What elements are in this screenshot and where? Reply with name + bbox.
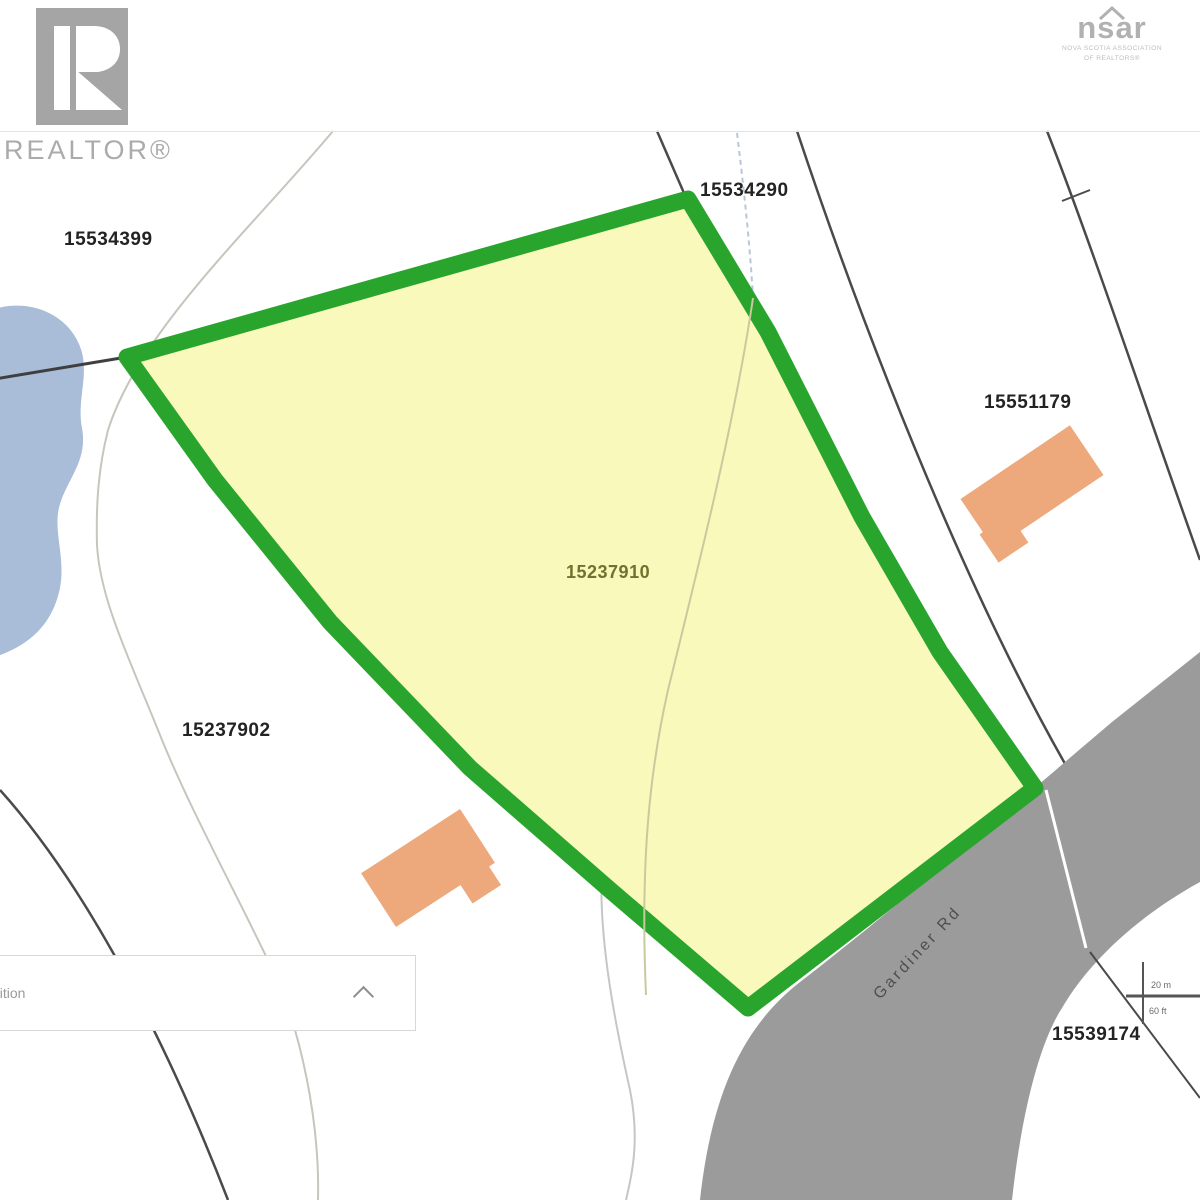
chevron-up-icon[interactable] xyxy=(353,985,374,1006)
scale-metric: 20 m xyxy=(1151,980,1171,990)
house-roof-icon xyxy=(1098,5,1126,21)
building-footprint xyxy=(361,809,507,945)
survey-tick xyxy=(1062,190,1090,201)
realtor-logo: REALTOR® xyxy=(4,4,174,166)
parcel-label: 15534290 xyxy=(700,180,789,201)
listing-map-page: 15534399 15534290 15551179 15237910 1523… xyxy=(0,0,1200,1200)
subject-parcel-highlight xyxy=(127,199,1035,1008)
realtor-wordmark: REALTOR® xyxy=(4,135,174,166)
parcel-label: 15534399 xyxy=(64,229,153,250)
building-footprint xyxy=(957,425,1111,562)
edge-label-fragment: 6 xyxy=(0,906,1,927)
parcel-label: 15539174 xyxy=(1052,1024,1141,1045)
subject-parcel-label: 15237910 xyxy=(566,562,650,582)
nsar-wordmark: nsar xyxy=(1077,12,1147,43)
nsar-subtitle: NOVA SCOTIA ASSOCIATION OF REALTORS® xyxy=(1032,44,1192,64)
nsar-logo: nsar NOVA SCOTIA ASSOCIATION OF REALTORS… xyxy=(1032,12,1192,64)
realtor-r-icon xyxy=(4,4,134,128)
scale-imperial: 60 ft xyxy=(1149,1006,1167,1016)
parcel-boundary xyxy=(657,131,687,200)
accordion-panel[interactable]: dition xyxy=(0,955,416,1031)
water-body xyxy=(0,306,84,660)
parcel-label: 15551179 xyxy=(984,392,1072,413)
parcel-label: 15237902 xyxy=(182,720,271,741)
header-divider xyxy=(0,131,1200,132)
nsar-subtitle-line1: NOVA SCOTIA ASSOCIATION xyxy=(1032,44,1192,54)
accordion-label: dition xyxy=(0,985,25,1001)
stream-line xyxy=(97,545,318,1200)
nsar-subtitle-line2: OF REALTORS® xyxy=(1032,54,1192,64)
